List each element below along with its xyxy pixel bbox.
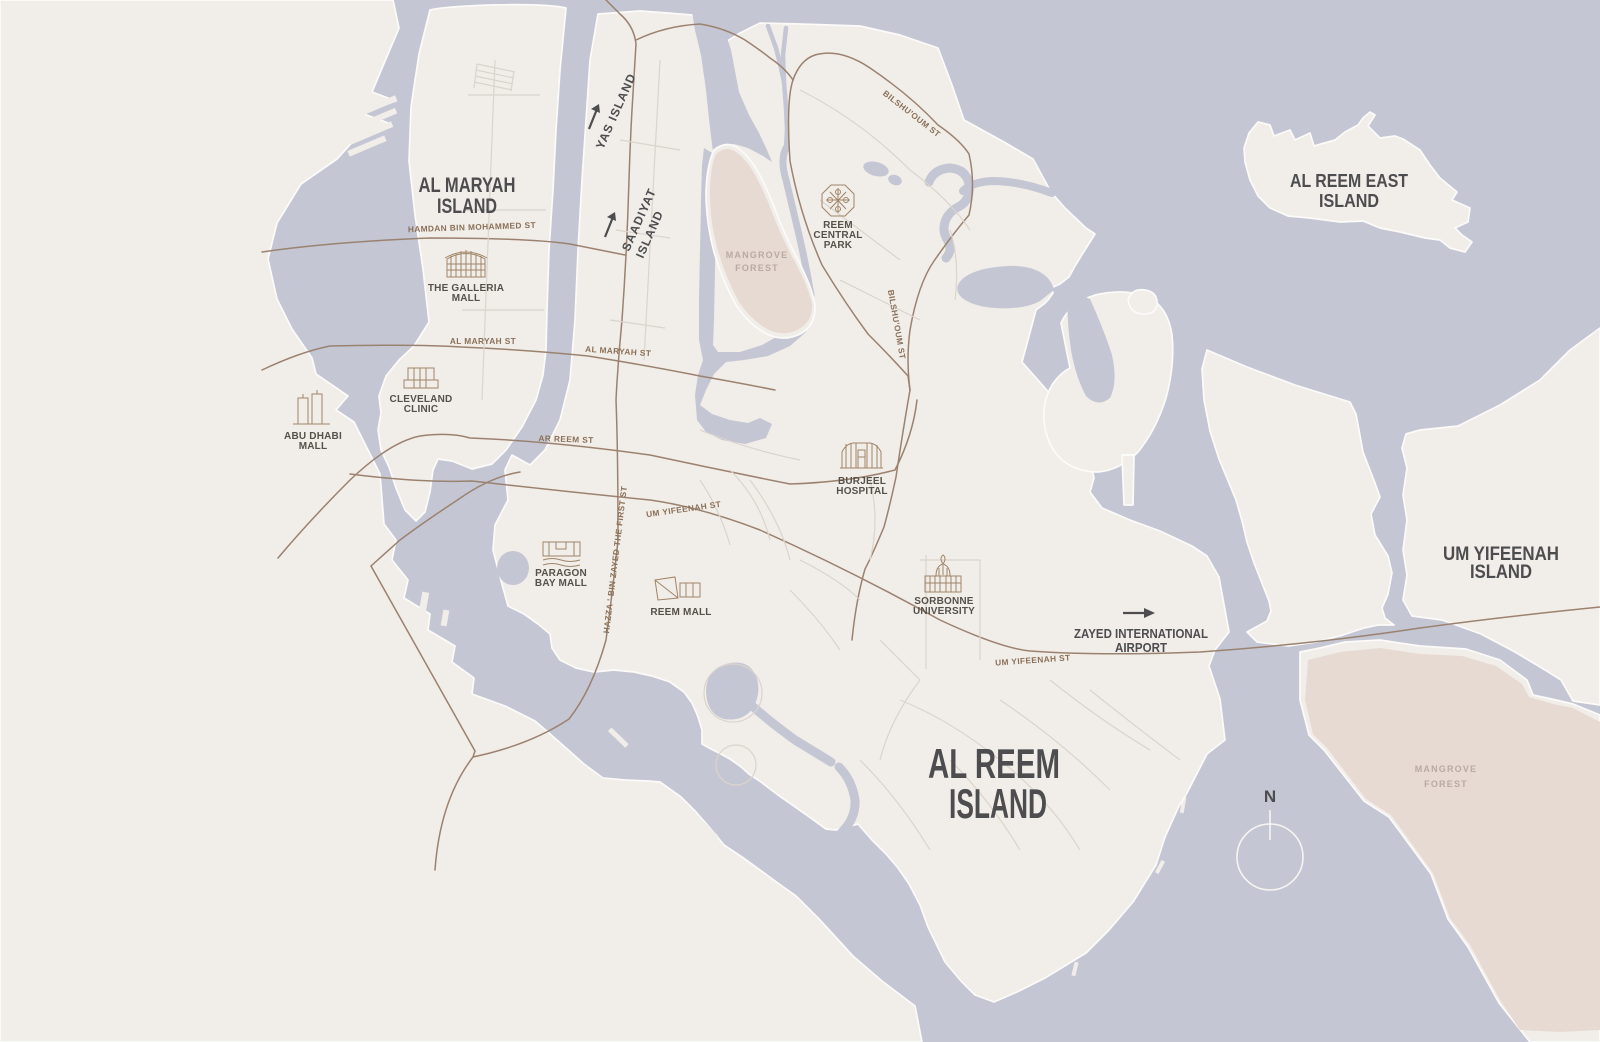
svg-text:BAY MALL: BAY MALL [535, 578, 587, 589]
svg-text:ISLAND: ISLAND [949, 780, 1047, 827]
svg-text:HOSPITAL: HOSPITAL [836, 486, 887, 497]
svg-text:ISLAND: ISLAND [437, 195, 497, 218]
svg-text:FOREST: FOREST [735, 263, 779, 273]
svg-text:AL REEM EAST: AL REEM EAST [1290, 171, 1408, 191]
svg-text:AL MARYAH: AL MARYAH [419, 174, 516, 197]
svg-text:ISLAND: ISLAND [1319, 191, 1379, 211]
svg-text:AR REEM ST: AR REEM ST [538, 433, 593, 445]
svg-text:UNIVERSITY: UNIVERSITY [913, 606, 975, 617]
svg-text:REEM MALL: REEM MALL [650, 607, 711, 618]
svg-text:FOREST: FOREST [1424, 779, 1468, 789]
svg-text:N: N [1264, 787, 1276, 806]
svg-text:MANGROVE: MANGROVE [1415, 764, 1478, 774]
svg-text:MALL: MALL [452, 293, 481, 304]
svg-text:MANGROVE: MANGROVE [726, 250, 789, 260]
svg-text:ISLAND: ISLAND [1470, 562, 1532, 583]
svg-text:AL MARYAH ST: AL MARYAH ST [450, 336, 516, 346]
svg-text:AIRPORT: AIRPORT [1115, 641, 1167, 655]
svg-text:CLINIC: CLINIC [404, 404, 439, 415]
svg-text:PARK: PARK [824, 240, 853, 251]
svg-text:MALL: MALL [299, 441, 328, 452]
svg-text:ZAYED INTERNATIONAL: ZAYED INTERNATIONAL [1074, 627, 1208, 641]
